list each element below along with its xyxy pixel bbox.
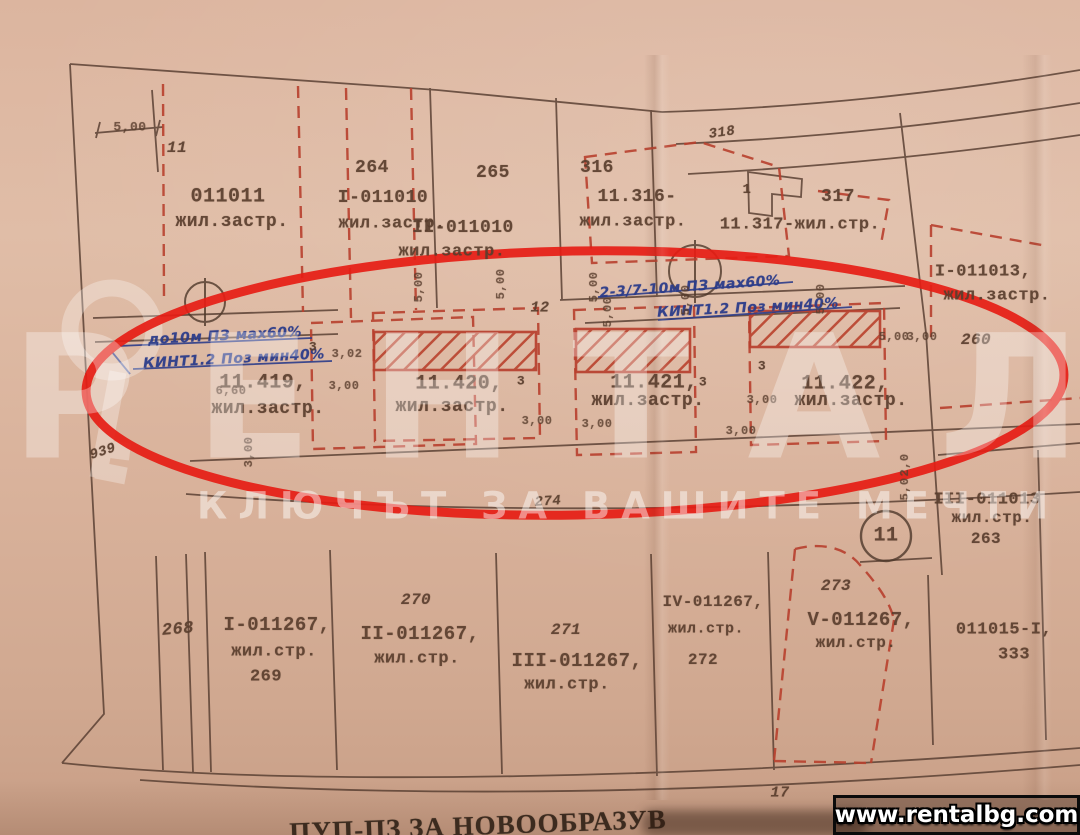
map-label: I-011013,	[935, 263, 1031, 282]
watermark-tagline: КЛЮЧЪТ ЗА ВАШИТЕ МЕЧТИ	[197, 485, 1059, 528]
map-label: жил.стр.	[668, 621, 744, 638]
map-label: жил.застр.	[579, 213, 686, 232]
map-label: 273	[821, 577, 851, 595]
map-label: 318	[708, 123, 737, 143]
map-label: 11.317-жил.стр.	[720, 216, 881, 235]
map-label: жил.стр.	[374, 650, 460, 669]
map-label: I-011010	[338, 188, 428, 208]
map-label: 333	[998, 646, 1030, 665]
map-label: 269	[250, 668, 282, 687]
map-label: 317	[821, 187, 855, 207]
map-label: 11	[167, 139, 187, 157]
map-label: 17	[770, 785, 789, 802]
map-label: III-011267,	[512, 650, 643, 672]
map-label: 316	[580, 158, 614, 178]
watermark-brand: РЕНТАЛ	[11, 298, 1080, 499]
map-label: 011015-I,	[956, 621, 1052, 640]
map-label: V-011267,	[807, 609, 914, 631]
map-label: 270	[401, 591, 431, 609]
map-label: 5,00	[494, 269, 508, 300]
map-label: II-011267,	[360, 623, 479, 645]
map-label: II-011010	[412, 218, 514, 238]
map-label: I-011267,	[223, 614, 330, 636]
map-label: 268	[161, 619, 195, 641]
map-label: 263	[971, 530, 1001, 548]
map-label: 5,00	[113, 120, 146, 135]
plan-photo: 5,0011011011жил.застр.264I-011010жил.зас…	[0, 0, 1080, 835]
map-label: 265	[476, 163, 510, 183]
map-label: 11	[873, 525, 898, 548]
map-label: 272	[688, 651, 718, 669]
watermark-url: www.rentalbg.com	[835, 802, 1079, 828]
map-label: 264	[355, 158, 389, 178]
map-label: 11.316-	[597, 187, 676, 207]
map-label: жил.застр.	[398, 243, 505, 262]
map-label: жил.стр.	[524, 676, 610, 695]
map-label: 011011	[190, 186, 265, 209]
map-label: 1	[743, 182, 752, 198]
map-label: жил.застр.	[175, 212, 288, 232]
map-label: IV-011267,	[662, 593, 763, 611]
watermark-url-bar: www.rentalbg.com	[833, 795, 1080, 835]
map-label: жил.стр.	[816, 634, 897, 652]
map-label: жил.стр.	[231, 643, 317, 662]
map-label: 271	[551, 621, 581, 639]
